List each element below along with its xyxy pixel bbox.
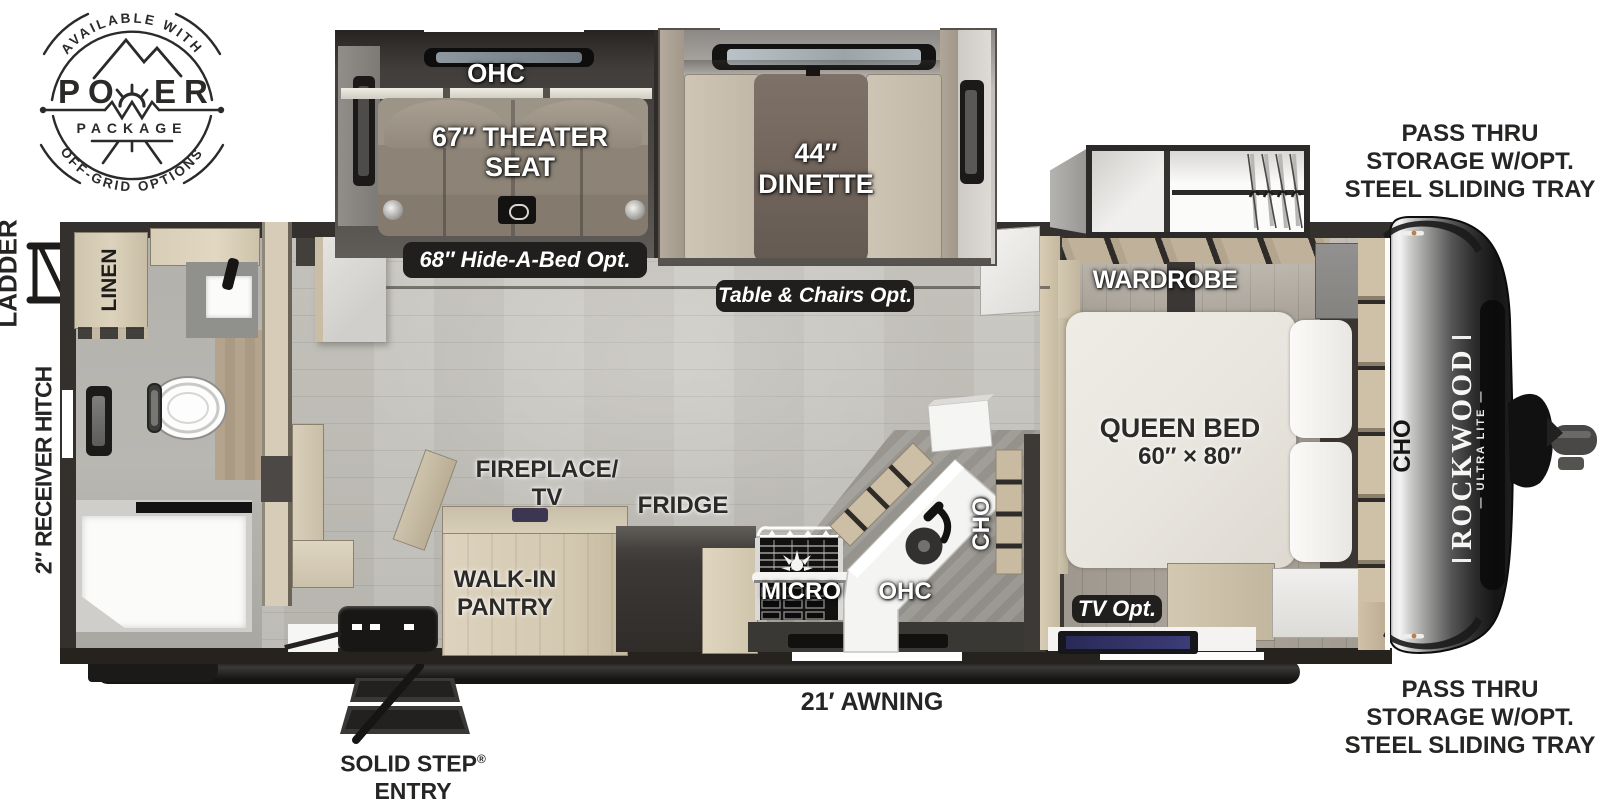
svg-text:ER: ER bbox=[154, 73, 216, 110]
svg-text:PO: PO bbox=[58, 73, 122, 110]
svg-text:PACKAGE: PACKAGE bbox=[77, 120, 188, 136]
